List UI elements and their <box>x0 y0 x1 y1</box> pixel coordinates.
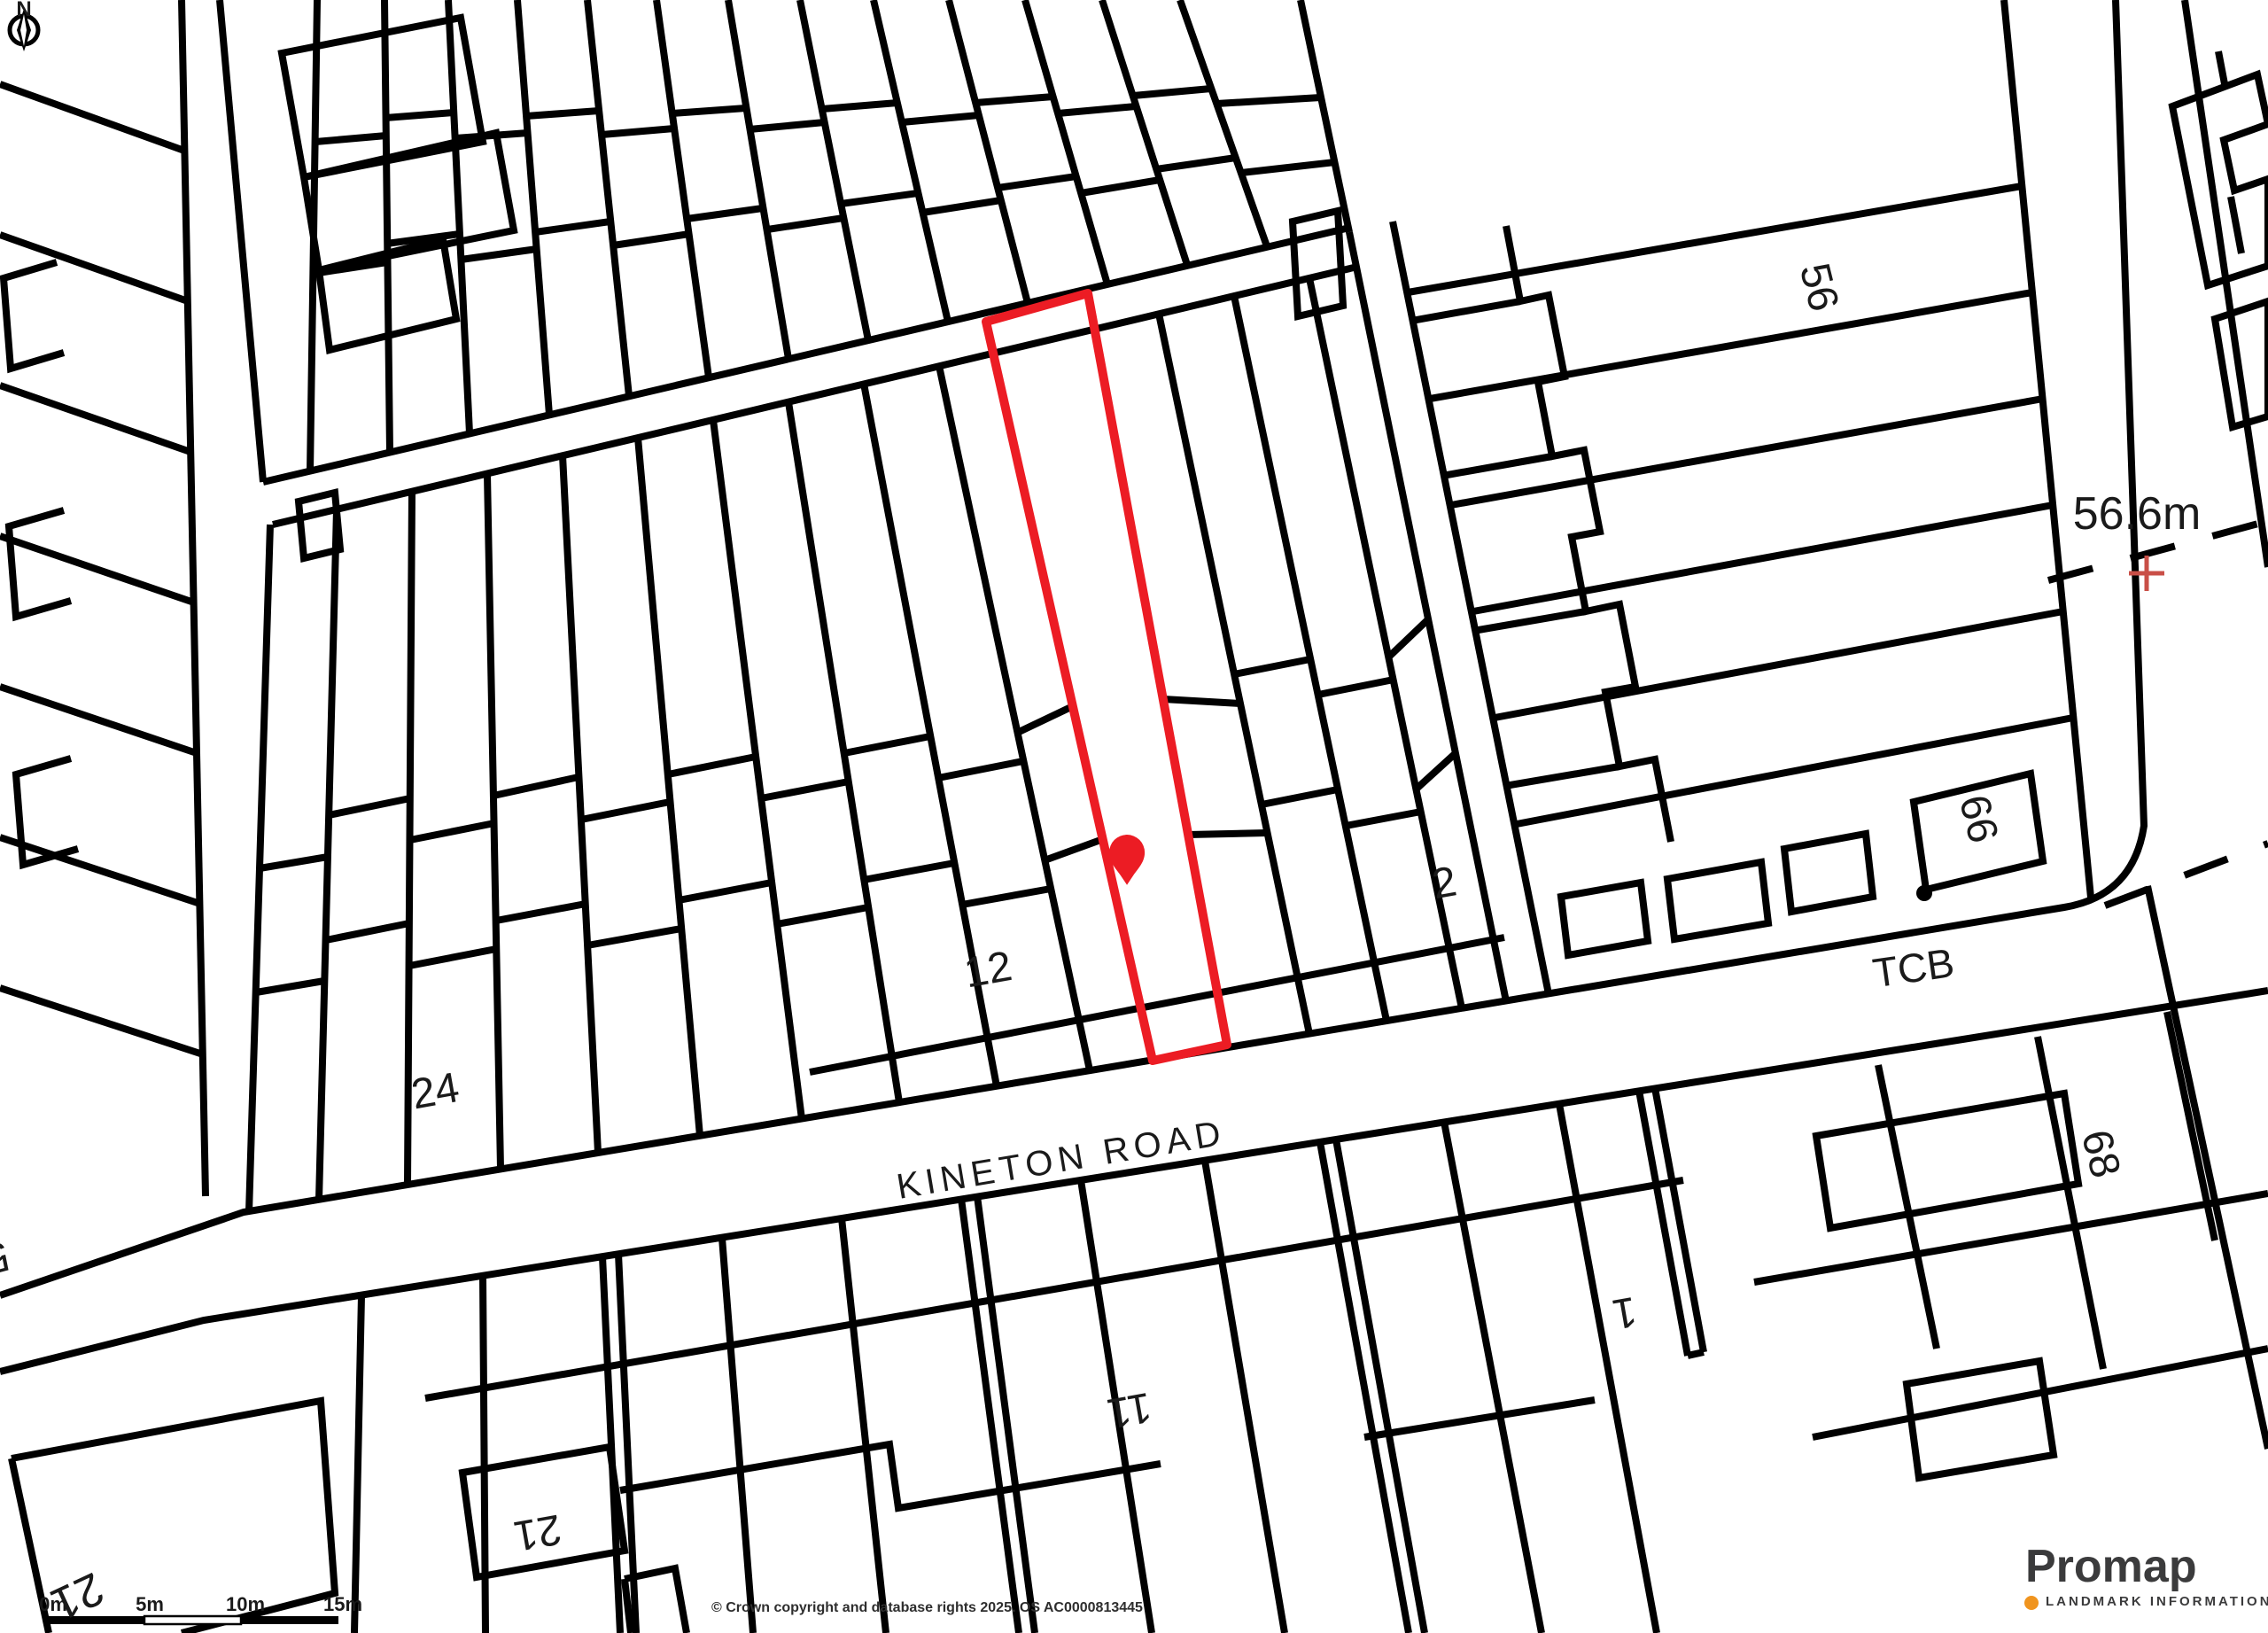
east-boundary-line <box>2004 0 2091 898</box>
street-name-kineton-road: KINETON ROAD <box>894 1113 1229 1206</box>
south-row-rear-walls <box>620 1400 1595 1508</box>
scale-label-5m: 5m <box>136 1593 164 1615</box>
property-plot-boundary[interactable] <box>986 293 1227 1061</box>
spot-height-label: 56.6m <box>2073 488 2202 540</box>
landmark-information-text: LANDMARK INFORMATION <box>2046 1594 2268 1609</box>
south-row-front-walls <box>425 1180 1683 1398</box>
house-number-2: 2 <box>1429 858 1461 908</box>
bottom-centre-buildings <box>462 1447 687 1633</box>
right-block-terrace-steps <box>1506 226 1671 842</box>
house-number-12: 12 <box>960 943 1015 997</box>
se-continuation-line <box>2148 886 2268 1449</box>
copyright-notice: © Crown copyright and database rights 20… <box>711 1600 1243 1616</box>
house-number-1: 1 <box>1609 1287 1641 1338</box>
right-roadside-buildings <box>1561 834 1873 955</box>
landmark-dot-icon <box>2023 1595 2039 1611</box>
dashed-boundaries <box>2048 521 2268 906</box>
house-number-11: 11 <box>1104 1383 1155 1437</box>
house-number-partial: 5 <box>0 1232 14 1283</box>
promap-logo: Promap LANDMARK INFORMATION <box>2004 1544 2268 1618</box>
house-number-24: 24 <box>408 1064 462 1118</box>
front-garden-wall <box>810 937 1504 1072</box>
left-terrace-walls <box>0 84 203 1054</box>
scale-label-15m: 15m <box>323 1593 362 1615</box>
house-number-66: 66 <box>1950 790 2007 848</box>
central-plot-dividers <box>319 278 1462 1200</box>
house-number-21: 21 <box>510 1505 565 1559</box>
map-stage: KINETON ROAD122245666682111121556.6mTCBN… <box>0 0 2268 1633</box>
left-terrace-steps <box>4 262 78 865</box>
tcb-label: TCB <box>1870 939 1957 996</box>
scale-label-0m: 0m <box>39 1593 67 1615</box>
house-number-68: 68 <box>2072 1125 2129 1183</box>
tcb-dot <box>1916 885 1932 901</box>
map-canvas[interactable]: KINETON ROAD122245666682111121556.6mTCBN… <box>0 0 2268 1633</box>
house-number-56: 56 <box>1790 259 1847 316</box>
scale-label-10m: 10m <box>226 1593 265 1615</box>
right-block-strip-dividers <box>1408 186 2073 824</box>
north-label: N <box>16 0 31 21</box>
promap-logo-text: Promap <box>2025 1540 2197 1593</box>
